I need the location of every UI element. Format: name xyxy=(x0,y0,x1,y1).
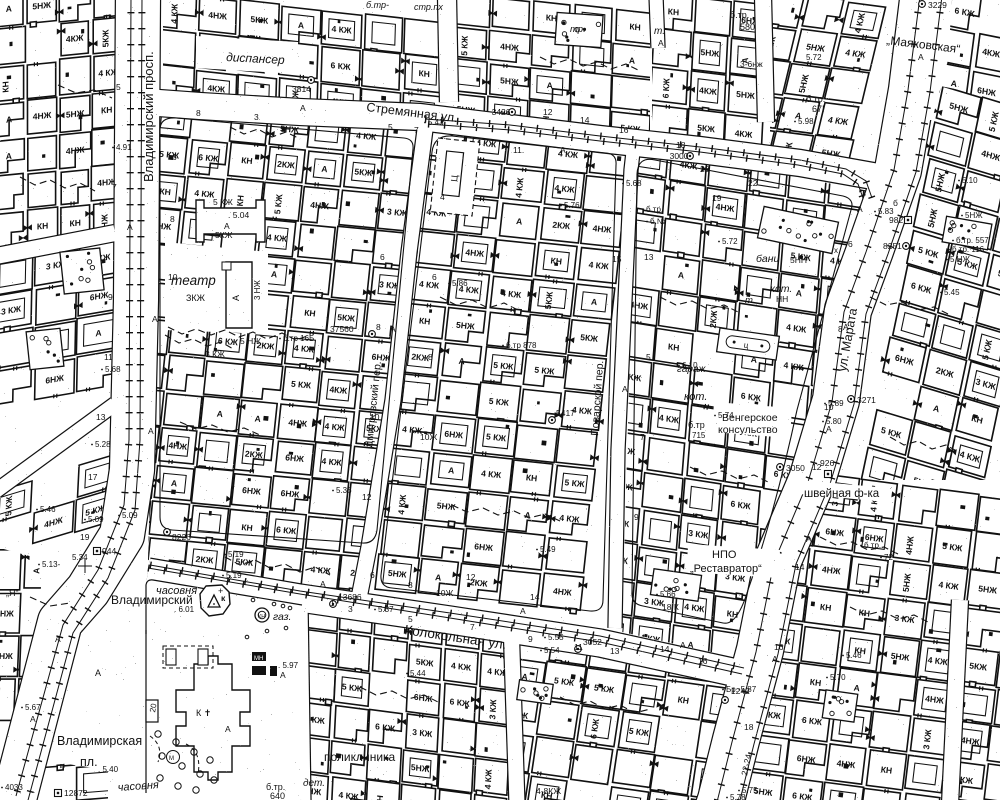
svg-text:9: 9 xyxy=(108,292,113,302)
svg-text:КН: КН xyxy=(304,308,316,319)
svg-text:3: 3 xyxy=(254,112,259,122)
svg-text:7: 7 xyxy=(414,125,419,135)
svg-text:72: 72 xyxy=(884,553,893,562)
svg-text:8251: 8251 xyxy=(883,241,902,251)
svg-text:5.68: 5.68 xyxy=(105,365,121,374)
svg-text:926: 926 xyxy=(820,458,834,468)
svg-text:14: 14 xyxy=(530,592,540,602)
svg-text:А: А xyxy=(95,668,101,678)
svg-text:А: А xyxy=(300,103,306,113)
svg-text:5.37: 5.37 xyxy=(378,605,394,614)
svg-text:МН: МН xyxy=(254,656,263,662)
svg-text:12: 12 xyxy=(543,107,553,117)
svg-text:16: 16 xyxy=(619,125,629,135)
svg-text:КН: КН xyxy=(419,315,431,326)
svg-text:20: 20 xyxy=(700,164,710,174)
svg-text:А: А xyxy=(127,222,133,232)
svg-text:6НЖ: 6НЖ xyxy=(444,429,464,441)
svg-text:37560: 37560 xyxy=(330,324,354,334)
svg-text:5.44: 5.44 xyxy=(410,669,426,678)
svg-text:А: А xyxy=(772,654,778,664)
svg-text:КН: КН xyxy=(418,68,430,79)
svg-text:7: 7 xyxy=(640,432,645,442)
svg-text:7: 7 xyxy=(470,622,475,632)
svg-text:А: А xyxy=(622,384,628,394)
svg-text:А: А xyxy=(152,314,158,324)
svg-text:17: 17 xyxy=(88,472,98,482)
svg-text:5НЖ: 5НЖ xyxy=(456,320,476,332)
svg-text:6: 6 xyxy=(380,252,385,262)
svg-text:4НЖ: 4НЖ xyxy=(465,247,485,259)
svg-text:А: А xyxy=(547,80,553,91)
svg-text:А: А xyxy=(271,269,278,280)
svg-text:5НЖ: 5НЖ xyxy=(32,0,51,11)
svg-text:5.49: 5.49 xyxy=(540,545,556,554)
svg-text:газ.: газ. xyxy=(273,611,291,623)
svg-text:4НЖ: 4НЖ xyxy=(33,110,52,122)
svg-text:5НЖ: 5НЖ xyxy=(500,75,519,87)
svg-text:А: А xyxy=(678,270,685,281)
svg-text:б.тр 16Б: б.тр 16Б xyxy=(283,334,314,343)
svg-text:6НЖ: 6НЖ xyxy=(280,488,300,500)
svg-text:5 КЖ: 5 КЖ xyxy=(564,477,585,489)
svg-text:КН: КН xyxy=(101,104,112,115)
svg-text:5.70: 5.70 xyxy=(830,673,846,682)
svg-text:КН: КН xyxy=(809,677,821,688)
svg-text:5КЖ: 5КЖ xyxy=(543,291,555,310)
svg-text:бани: бани xyxy=(756,253,780,265)
svg-text:4 КЖ: 4 КЖ xyxy=(194,188,215,200)
svg-text:А: А xyxy=(224,221,230,231)
svg-text:6 КЖ: 6 КЖ xyxy=(792,790,813,800)
svg-text:14: 14 xyxy=(795,562,805,572)
svg-text:13: 13 xyxy=(610,646,620,656)
svg-text:т.: т. xyxy=(745,295,755,306)
svg-text:6.10: 6.10 xyxy=(682,361,698,370)
svg-text:консульство: консульство xyxy=(718,424,778,436)
svg-text:5.55: 5.55 xyxy=(548,633,564,642)
svg-text:2КЖ: 2КЖ xyxy=(195,554,214,566)
svg-text:. 5.97: . 5.97 xyxy=(278,661,299,670)
svg-text:4НЖ: 4НЖ xyxy=(500,41,519,53)
svg-text:5.19: 5.19 xyxy=(226,571,242,580)
svg-text:5 КЖ: 5 КЖ xyxy=(3,495,14,518)
svg-text:„Я“: „Я“ xyxy=(6,588,19,598)
svg-text:КН: КН xyxy=(546,12,558,23)
svg-text:5.28: 5.28 xyxy=(95,440,111,449)
svg-text:4 КЖ: 4 КЖ xyxy=(266,232,287,244)
svg-text:А: А xyxy=(254,413,261,424)
svg-text:5НЖ: 5НЖ xyxy=(387,568,407,580)
svg-text:8: 8 xyxy=(196,108,201,118)
svg-text:4033: 4033 xyxy=(5,783,23,792)
svg-text:пл.: пл. xyxy=(80,755,98,769)
svg-text:Бр.-5.87: Бр.-5.87 xyxy=(726,685,757,694)
svg-text:10Ж: 10Ж xyxy=(420,432,437,442)
svg-text:А: А xyxy=(231,295,241,301)
svg-text:4-8КЖ: 4-8КЖ xyxy=(536,786,561,796)
svg-text:5КЖ: 5КЖ xyxy=(101,29,111,48)
svg-text:8226: 8226 xyxy=(172,532,191,542)
svg-text:5КЖ: 5КЖ xyxy=(354,166,373,178)
svg-text:6: 6 xyxy=(848,239,853,249)
svg-text:б.№: б.№ xyxy=(650,217,666,226)
svg-text:4НЖ: 4НЖ xyxy=(592,223,612,235)
svg-text:А: А xyxy=(680,640,686,650)
svg-text:4КЖ: 4КЖ xyxy=(329,384,348,396)
svg-text:5.10: 5.10 xyxy=(962,176,978,185)
svg-text:18: 18 xyxy=(744,722,754,732)
svg-text:3 КЖ: 3 КЖ xyxy=(205,349,225,359)
svg-text:А: А xyxy=(806,534,812,544)
svg-text:5НЖ: 5НЖ xyxy=(965,211,983,220)
svg-text:5 КЖ: 5 КЖ xyxy=(488,396,509,408)
svg-text:3814: 3814 xyxy=(292,84,311,94)
svg-text:4 КЖ: 4 КЖ xyxy=(338,790,359,800)
svg-text:4НЖ: 4НЖ xyxy=(66,144,85,156)
svg-text:12: 12 xyxy=(466,572,476,582)
svg-text:А: А xyxy=(6,3,12,14)
svg-text:М: М xyxy=(169,756,174,762)
svg-text:5.54: 5.54 xyxy=(544,646,560,655)
svg-text:4 КЖ: 4 КЖ xyxy=(588,259,609,271)
svg-text:22: 22 xyxy=(748,178,758,188)
svg-text:10: 10 xyxy=(370,412,380,422)
svg-text:А: А xyxy=(591,297,598,308)
svg-text:6: 6 xyxy=(370,570,375,580)
svg-text:А: А xyxy=(516,216,523,227)
svg-text:5.46: 5.46 xyxy=(40,505,56,514)
svg-text:А: А xyxy=(225,724,231,734)
svg-text:5.68: 5.68 xyxy=(626,179,642,188)
svg-text:12: 12 xyxy=(812,462,822,472)
svg-text:К ✝: К ✝ xyxy=(196,708,211,718)
svg-text:14: 14 xyxy=(660,644,670,654)
svg-text:5.66: 5.66 xyxy=(660,590,676,599)
svg-text:5.09: 5.09 xyxy=(88,515,104,524)
svg-text:9: 9 xyxy=(634,512,639,522)
svg-text:4 КЖ: 4 КЖ xyxy=(324,421,345,433)
svg-text:А: А xyxy=(795,288,802,299)
svg-text:5 НЖ: 5 НЖ xyxy=(240,336,261,346)
svg-text:4: 4 xyxy=(440,192,445,202)
svg-text:. 5.04: . 5.04 xyxy=(228,210,250,220)
svg-text:А: А xyxy=(298,20,304,31)
svg-text:640: 640 xyxy=(270,791,285,800)
svg-text:А: А xyxy=(216,409,223,420)
svg-text:А: А xyxy=(30,714,36,724)
svg-text:5.67: 5.67 xyxy=(25,703,41,712)
svg-text:б.тр.: б.тр. xyxy=(646,205,663,214)
svg-text:5.13-: 5.13- xyxy=(42,560,61,569)
svg-text:Владимирская: Владимирская xyxy=(57,734,142,748)
svg-text:НН: НН xyxy=(776,294,788,304)
svg-text:10: 10 xyxy=(168,272,178,282)
svg-text:2КЖ: 2КЖ xyxy=(244,449,263,461)
svg-text:5.98: 5.98 xyxy=(798,117,814,126)
svg-text:5НЖ: 5НЖ xyxy=(436,500,456,512)
svg-text:дет.: дет. xyxy=(303,778,325,789)
svg-text:8: 8 xyxy=(838,324,843,334)
svg-text:3052: 3052 xyxy=(583,637,602,647)
svg-text:6НЖ: 6НЖ xyxy=(242,485,262,497)
svg-text:5.74: 5.74 xyxy=(718,411,734,420)
svg-text:4 КЖ: 4 КЖ xyxy=(356,130,377,142)
svg-text:4 КЖ: 4 КЖ xyxy=(559,513,580,525)
svg-text:5: 5 xyxy=(408,614,413,624)
svg-text:3271: 3271 xyxy=(857,395,876,405)
svg-text:5КЖ: 5КЖ xyxy=(337,312,356,324)
svg-text:5: 5 xyxy=(646,352,651,362)
svg-text:стр.пх: стр.пх xyxy=(414,2,443,12)
svg-text:14: 14 xyxy=(580,115,590,125)
svg-text:4КЖ: 4КЖ xyxy=(66,33,84,45)
svg-text:3 КЖ: 3 КЖ xyxy=(487,699,498,721)
svg-text:А: А xyxy=(524,510,531,521)
svg-text:А: А xyxy=(857,204,863,214)
svg-text:КН: КН xyxy=(241,522,253,533)
svg-text:715: 715 xyxy=(692,431,706,440)
svg-text:6НЖ: 6НЖ xyxy=(474,541,494,553)
svg-text:4НЖ: 4НЖ xyxy=(553,586,573,598)
svg-text:. 6.01: . 6.01 xyxy=(174,605,195,614)
svg-text:НПО: НПО xyxy=(712,549,737,561)
svg-text:КН: КН xyxy=(726,608,738,620)
svg-text:4КЖ: 4КЖ xyxy=(734,128,752,140)
svg-text:КН: КН xyxy=(235,195,246,207)
svg-text:б: б xyxy=(893,198,898,208)
svg-text:8: 8 xyxy=(170,214,175,224)
svg-text:18 К: 18 К xyxy=(662,602,679,612)
svg-text:8: 8 xyxy=(428,352,433,362)
svg-text:КН: КН xyxy=(819,602,831,613)
svg-text:4.91: 4.91 xyxy=(116,143,132,152)
svg-text:12872: 12872 xyxy=(64,788,88,798)
svg-text:А: А xyxy=(629,55,635,66)
svg-text:А: А xyxy=(55,634,61,644)
svg-text:3: 3 xyxy=(348,604,353,614)
svg-text:8: 8 xyxy=(408,580,413,590)
svg-text:5.09: 5.09 xyxy=(122,511,138,520)
svg-text:4 КЖ: 4 КЖ xyxy=(169,3,180,24)
svg-text:4НЖ: 4НЖ xyxy=(310,200,330,212)
svg-text:поликлиника: поликлиника xyxy=(324,750,396,764)
svg-text:5 КЖ: 5 КЖ xyxy=(459,35,470,56)
svg-text:А: А xyxy=(918,52,924,62)
svg-text:тр.: тр. xyxy=(570,24,586,35)
svg-text:3-6нж: 3-6нж xyxy=(740,59,763,69)
svg-text:КН: КН xyxy=(241,155,253,166)
svg-text:5КЖ: 5КЖ xyxy=(215,230,233,240)
svg-text:13686: 13686 xyxy=(338,592,362,602)
svg-text:театр: театр xyxy=(171,273,216,288)
svg-text:кот.: кот. xyxy=(684,391,707,403)
svg-text:1: 1 xyxy=(330,598,335,608)
svg-text:3229: 3229 xyxy=(928,0,947,10)
svg-text:982: 982 xyxy=(889,215,903,225)
svg-text:13: 13 xyxy=(644,252,654,262)
svg-text:А: А xyxy=(853,683,860,694)
svg-text:А: А xyxy=(320,579,326,589)
svg-text:5 КЖ: 5 КЖ xyxy=(272,194,284,215)
svg-text:4КЖ: 4КЖ xyxy=(699,85,717,97)
svg-text:6 КЖ: 6 КЖ xyxy=(276,524,297,536)
svg-text:4 КЖ: 4 КЖ xyxy=(321,456,342,468)
svg-text:КН: КН xyxy=(1,81,11,93)
svg-text:5: 5 xyxy=(388,122,393,132)
svg-text:5417: 5417 xyxy=(556,408,575,418)
svg-text:9: 9 xyxy=(528,634,533,644)
svg-text:13: 13 xyxy=(96,412,106,422)
svg-text:КН: КН xyxy=(880,764,892,775)
svg-text:4 КЖ: 4 КЖ xyxy=(483,768,494,790)
svg-text:А: А xyxy=(321,164,328,175)
svg-text:2КЖ: 2КЖ xyxy=(411,351,430,363)
svg-text:А: А xyxy=(6,114,12,125)
svg-text:А: А xyxy=(448,465,455,476)
svg-text:2КЖ: 2КЖ xyxy=(552,220,571,232)
svg-text:6: 6 xyxy=(172,152,177,162)
svg-text:А: А xyxy=(826,424,832,434)
svg-text:А: А xyxy=(31,568,41,574)
svg-text:5.78: 5.78 xyxy=(730,793,746,800)
svg-text:3050: 3050 xyxy=(786,463,805,473)
svg-text:б.тр-: б.тр- xyxy=(366,0,389,10)
svg-text:А: А xyxy=(95,328,101,339)
svg-text:5 КЖ: 5 КЖ xyxy=(493,360,514,372)
svg-text:16: 16 xyxy=(774,642,784,652)
svg-text:6НЖ: 6НЖ xyxy=(285,452,305,464)
svg-text:8: 8 xyxy=(376,322,381,332)
svg-text:А: А xyxy=(280,670,286,680)
svg-text:6: 6 xyxy=(432,272,437,282)
svg-text:А: А xyxy=(435,572,442,583)
svg-text:КН: КН xyxy=(525,472,537,483)
svg-text:10Ж: 10Ж xyxy=(436,588,453,598)
svg-text:б.тр: б.тр xyxy=(688,420,705,430)
svg-text:б.тр. 557: б.тр. 557 xyxy=(956,236,989,245)
svg-text:7: 7 xyxy=(112,182,117,192)
svg-text:х: х xyxy=(834,246,838,255)
svg-text:5 КЖ: 5 КЖ xyxy=(486,431,507,443)
svg-text:КН: КН xyxy=(858,607,870,618)
svg-text:. 5.40: . 5.40 xyxy=(98,765,119,774)
svg-text:5.86: 5.86 xyxy=(452,279,468,288)
svg-text:3000: 3000 xyxy=(670,151,689,161)
svg-text:3 КЖ: 3 КЖ xyxy=(387,206,408,218)
svg-text:5.83: 5.83 xyxy=(878,207,894,216)
svg-text:19: 19 xyxy=(712,193,722,203)
svg-text:А: А xyxy=(390,324,396,334)
svg-text:КН: КН xyxy=(677,694,690,705)
svg-text:КН: КН xyxy=(70,217,81,228)
svg-text:А: А xyxy=(520,606,526,616)
svg-text:5.19: 5.19 xyxy=(228,550,244,559)
svg-text:А: А xyxy=(658,38,664,48)
svg-text:А: А xyxy=(171,478,178,489)
svg-text:4НЖ: 4НЖ xyxy=(0,651,13,661)
svg-text:5 КЖ: 5 КЖ xyxy=(291,379,312,391)
svg-text:2КЖ: 2КЖ xyxy=(277,159,296,171)
svg-text:5.34: 5.34 xyxy=(72,553,88,562)
svg-text:3 НЖ: 3 НЖ xyxy=(253,280,262,300)
svg-text:А: А xyxy=(148,426,154,436)
svg-text:„Реставратор“: „Реставратор“ xyxy=(690,563,762,575)
svg-text:5КЖ: 5КЖ xyxy=(580,332,599,344)
svg-text:67!: 67! xyxy=(812,104,825,114)
svg-text:5.72: 5.72 xyxy=(806,53,822,62)
svg-text:4НЖ: 4НЖ xyxy=(0,608,14,618)
svg-text:16: 16 xyxy=(698,656,708,666)
svg-text:5 НЖ: 5 НЖ xyxy=(950,255,970,264)
svg-text:т.: т. xyxy=(654,26,665,37)
svg-text:А: А xyxy=(843,322,849,332)
svg-text:5НН: 5НН xyxy=(790,255,807,265)
svg-text:5.36: 5.36 xyxy=(336,486,352,495)
svg-text:5: 5 xyxy=(116,82,121,92)
svg-text:А: А xyxy=(950,78,957,89)
svg-text:+: + xyxy=(218,586,223,596)
svg-text:12: 12 xyxy=(362,492,372,502)
svg-text:КН: КН xyxy=(37,220,48,231)
svg-text:КН: КН xyxy=(258,614,265,620)
svg-text:б.тр.: б.тр. xyxy=(806,94,825,104)
svg-text:19: 19 xyxy=(80,532,90,542)
svg-text:15: 15 xyxy=(612,254,622,264)
svg-text:4НЖ: 4НЖ xyxy=(208,10,227,22)
svg-text:10: 10 xyxy=(824,402,834,412)
svg-text:11.: 11. xyxy=(513,145,524,155)
svg-text:5.46: 5.46 xyxy=(846,651,862,660)
svg-text:б.тр. 116: б.тр. 116 xyxy=(952,245,985,254)
svg-text:КН: КН xyxy=(629,21,641,32)
svg-text:КН: КН xyxy=(668,341,680,353)
svg-text:5.72: 5.72 xyxy=(722,237,738,246)
svg-text:580: 580 xyxy=(740,22,755,32)
svg-text:11: 11 xyxy=(104,352,113,362)
svg-text:6 КЖ: 6 КЖ xyxy=(198,152,219,164)
svg-text:А: А xyxy=(560,145,566,155)
svg-text:4 КЖ: 4 КЖ xyxy=(481,468,502,480)
svg-text:11: 11 xyxy=(574,642,583,652)
svg-text:А: А xyxy=(458,356,465,367)
svg-text:944: 944 xyxy=(102,546,116,556)
svg-text:3426: 3426 xyxy=(492,107,511,117)
svg-text:б.тр.: б.тр. xyxy=(864,541,881,550)
svg-text:КН: КН xyxy=(668,6,680,17)
svg-text:б.тр 878: б.тр 878 xyxy=(506,341,537,350)
svg-text:5.45: 5.45 xyxy=(944,288,960,297)
svg-text:б.тр.: б.тр. xyxy=(730,10,749,20)
svg-text:18: 18 xyxy=(676,140,686,150)
svg-text:5 КЖ: 5 КЖ xyxy=(534,365,555,377)
svg-text:2КЖ: 2КЖ xyxy=(708,309,719,328)
svg-text:6 КЖ: 6 КЖ xyxy=(661,78,672,99)
svg-text:5 КЖ: 5 КЖ xyxy=(213,197,233,207)
svg-text:5.76: 5.76 xyxy=(564,201,580,210)
svg-text:Владимирский просп.: Владимирский просп. xyxy=(141,51,156,182)
svg-text:швейная ф-ка: швейная ф-ка xyxy=(804,488,880,500)
svg-text:5.43: 5.43 xyxy=(428,118,444,127)
svg-text:ЗКЖ: ЗКЖ xyxy=(186,293,206,303)
